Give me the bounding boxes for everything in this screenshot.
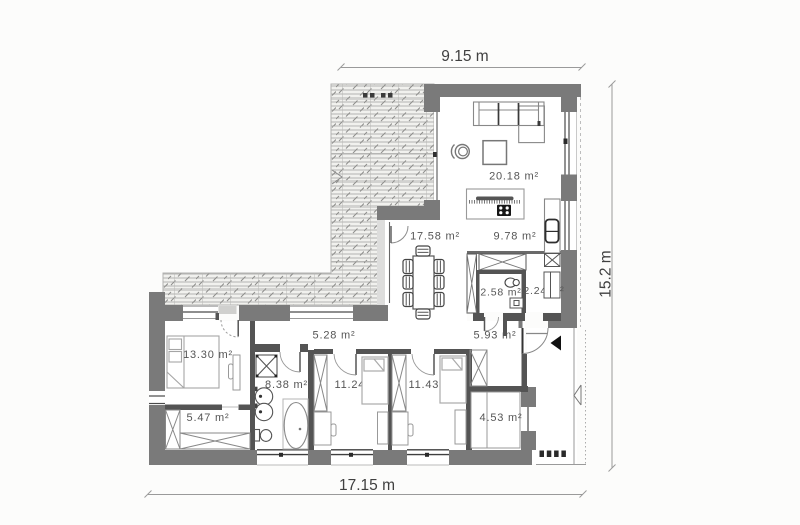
svg-text:17.58 m²: 17.58 m² xyxy=(410,231,460,243)
svg-text:9.15 m: 9.15 m xyxy=(441,48,488,65)
svg-text:4.53 m²: 4.53 m² xyxy=(480,412,523,424)
svg-text:5.93 m²: 5.93 m² xyxy=(474,330,517,342)
svg-text:9.78 m²: 9.78 m² xyxy=(494,231,537,243)
svg-text:20.18 m²: 20.18 m² xyxy=(489,171,539,183)
svg-text:13.30 m²: 13.30 m² xyxy=(183,349,233,361)
svg-text:15.2 m: 15.2 m xyxy=(598,250,615,297)
svg-text:5.47 m²: 5.47 m² xyxy=(187,412,230,424)
svg-text:17.15 m: 17.15 m xyxy=(339,477,395,494)
svg-text:2.58 m²: 2.58 m² xyxy=(480,287,521,299)
svg-text:8.38 m²: 8.38 m² xyxy=(265,379,308,391)
svg-text:5.28 m²: 5.28 m² xyxy=(313,330,356,342)
